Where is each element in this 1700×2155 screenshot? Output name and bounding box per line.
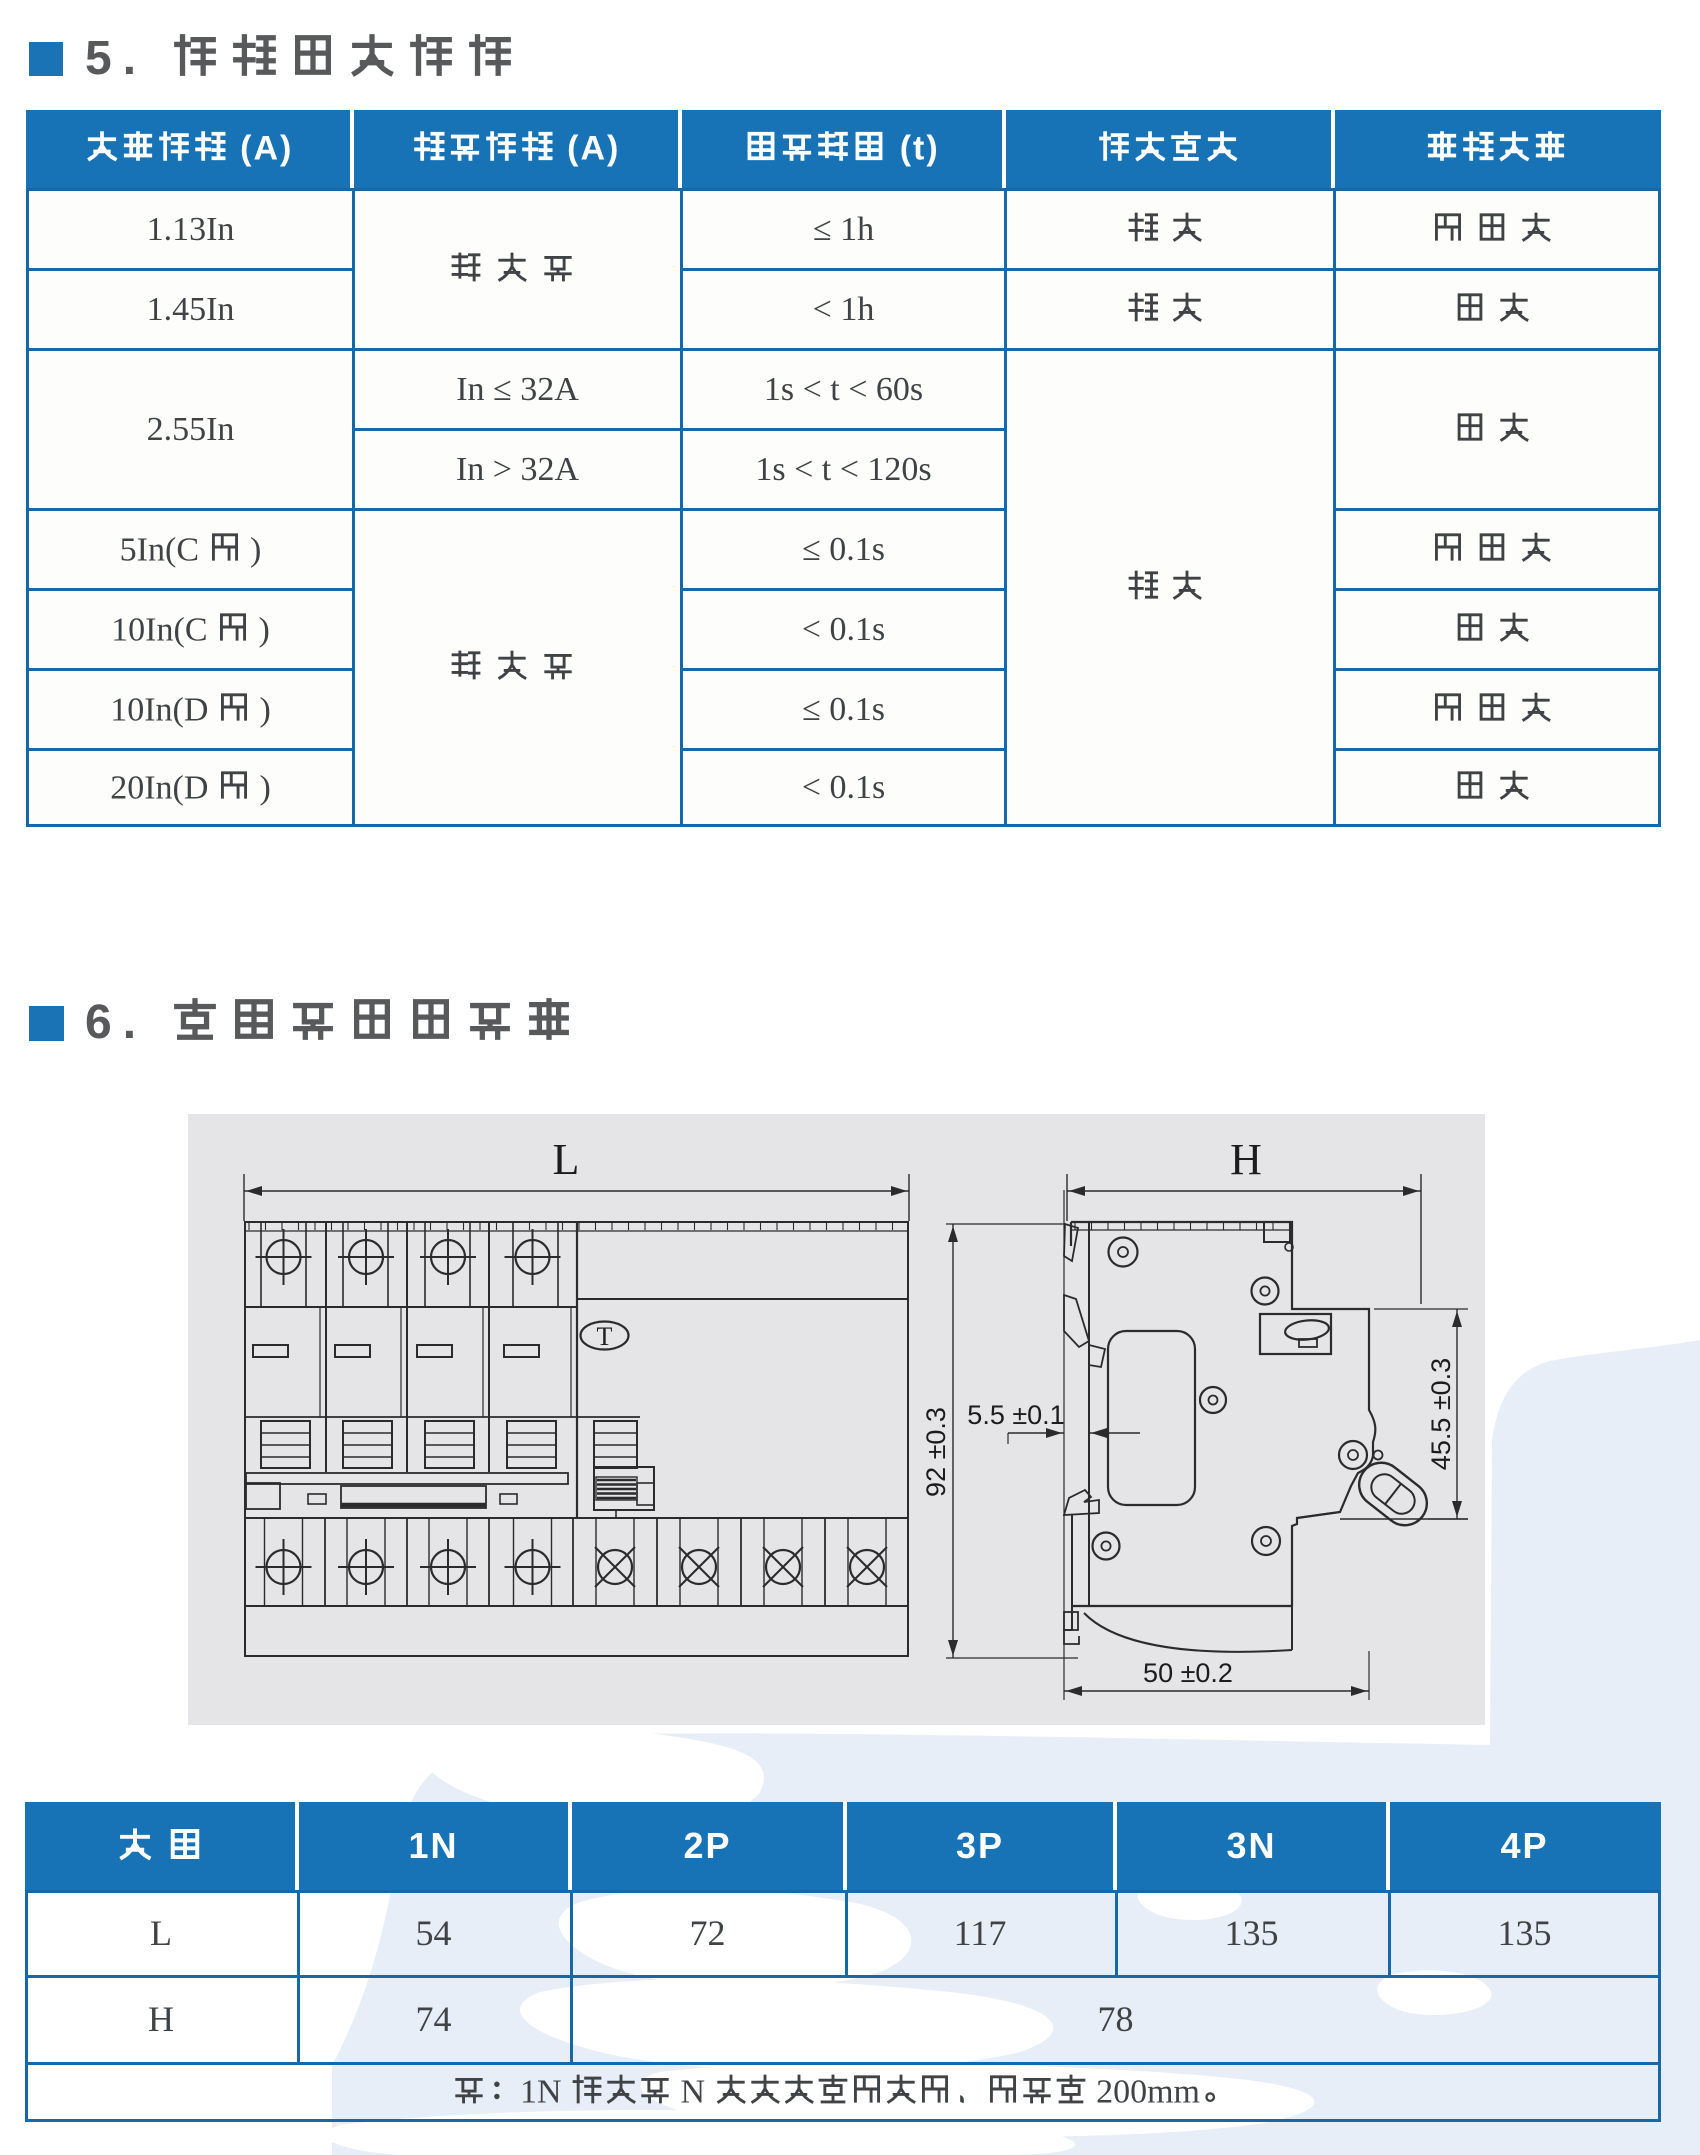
svg-text:45.5 ±0.3: 45.5 ±0.3	[1426, 1358, 1456, 1470]
svg-text:H: H	[1230, 1135, 1262, 1184]
svg-text:92 ±0.3: 92 ±0.3	[921, 1407, 951, 1497]
svg-text:5.5 ±0.1: 5.5 ±0.1	[967, 1400, 1064, 1430]
svg-text:50 ±0.2: 50 ±0.2	[1143, 1658, 1233, 1688]
svg-text:T: T	[597, 1322, 613, 1351]
svg-text:L: L	[553, 1135, 580, 1184]
